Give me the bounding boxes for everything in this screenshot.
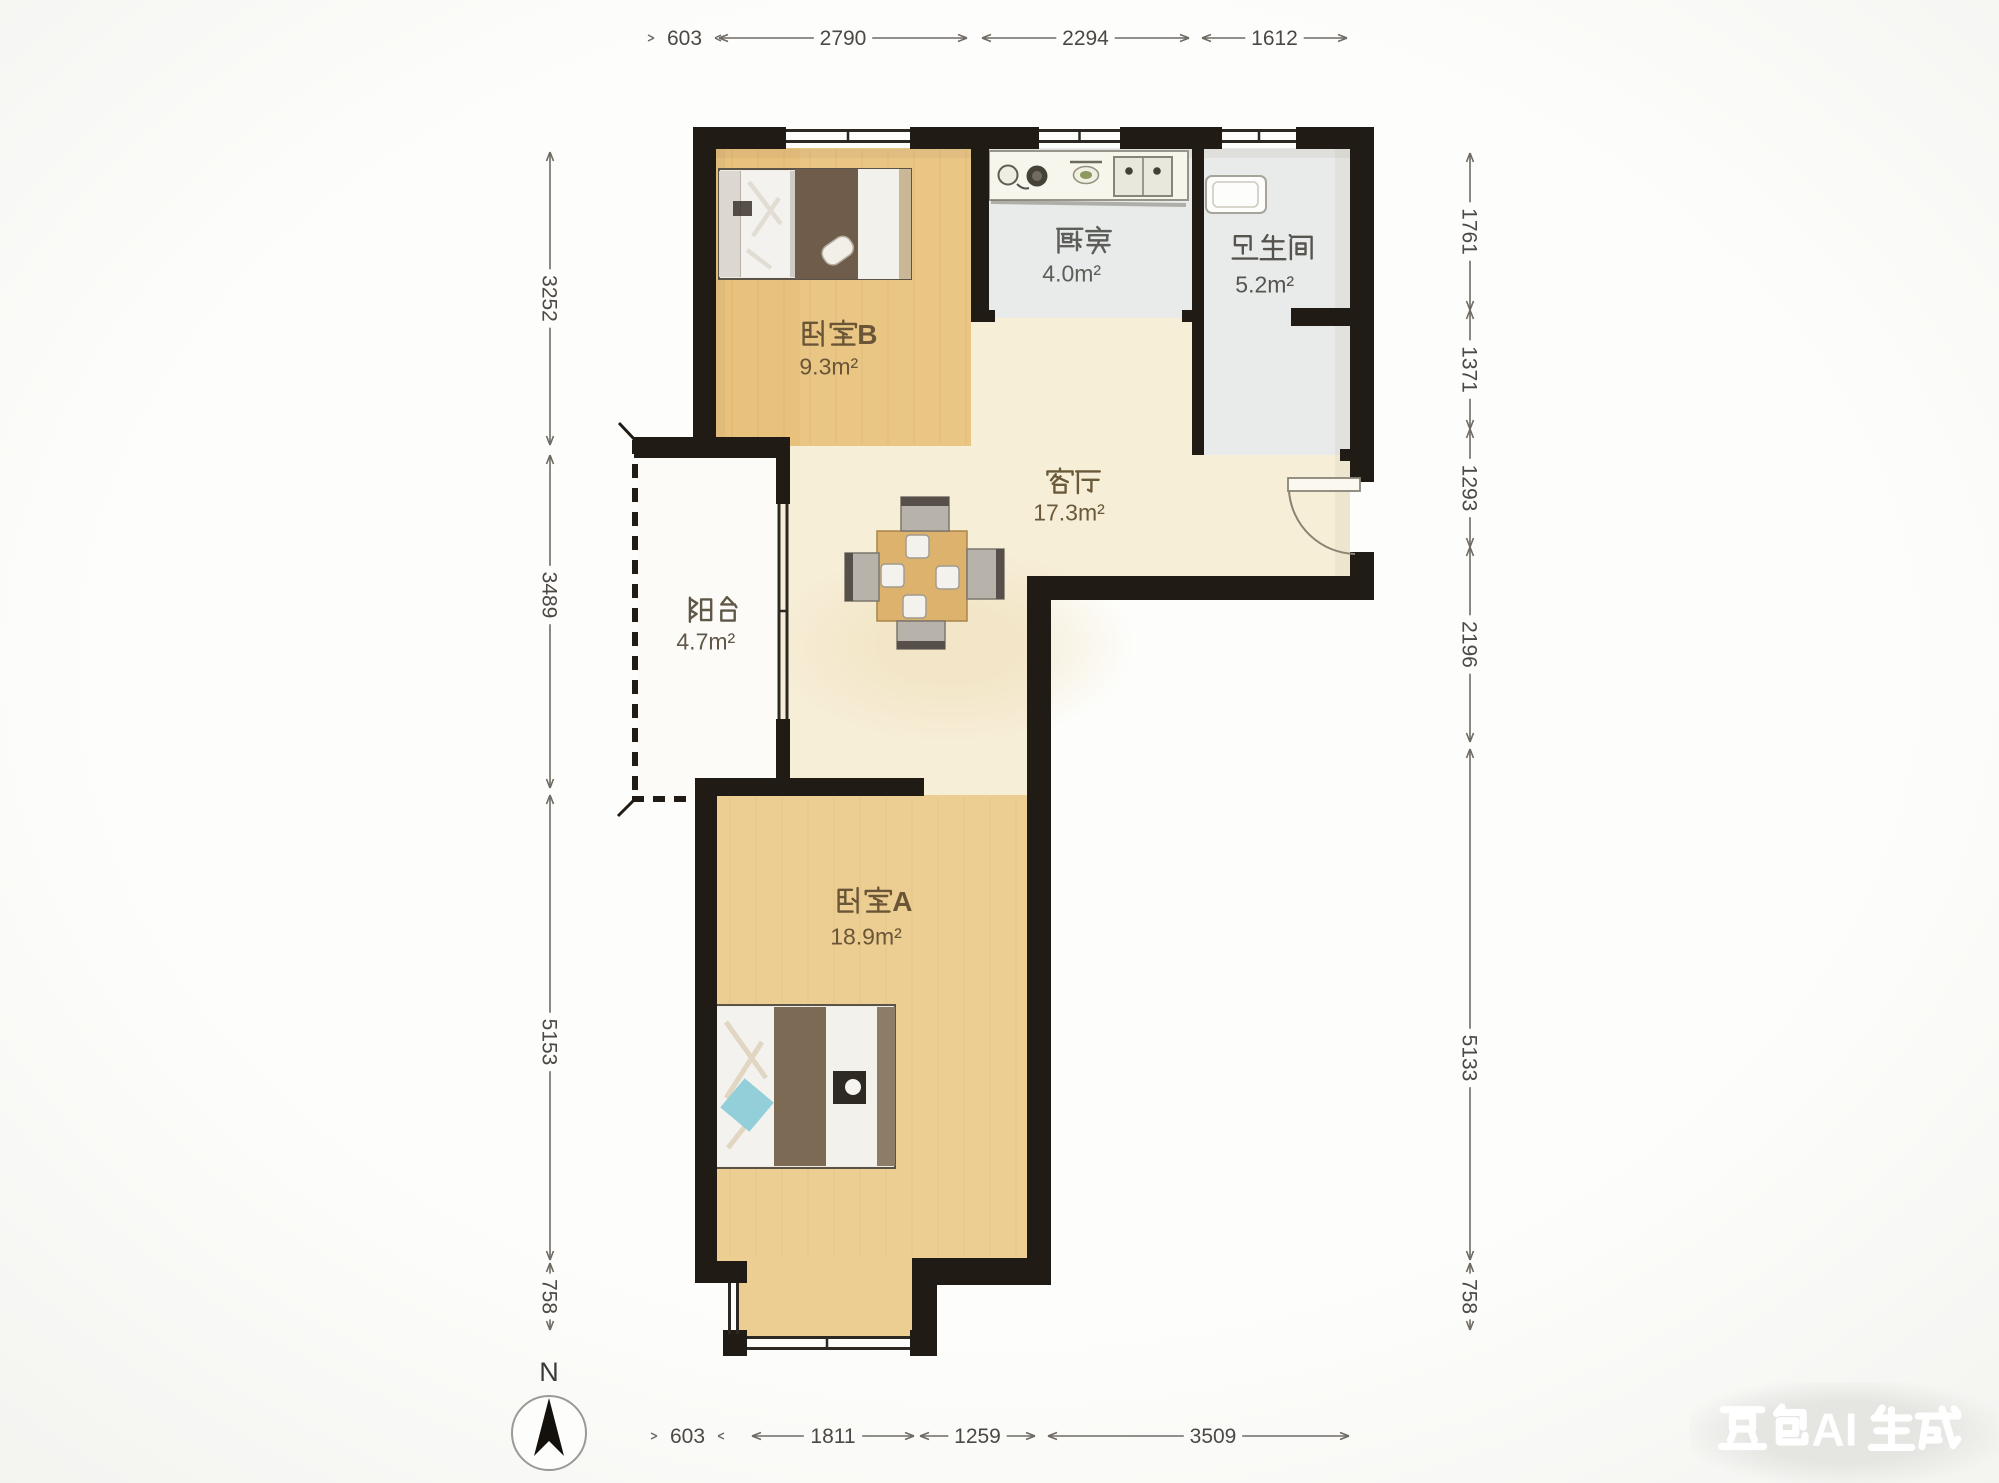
svg-text:17.3m²: 17.3m² [1033,499,1105,525]
svg-text:3489: 3489 [537,572,560,619]
svg-text:1293: 1293 [1457,465,1480,512]
svg-text:4.7m²: 4.7m² [676,628,735,654]
svg-text:9.3m²: 9.3m² [799,353,858,379]
svg-text:2196: 2196 [1457,621,1480,668]
svg-text:1371: 1371 [1457,346,1480,393]
svg-text:4.0m²: 4.0m² [1042,260,1101,286]
svg-text:1259: 1259 [954,1425,1001,1448]
svg-text:B: B [857,319,877,350]
svg-text:758: 758 [1457,1279,1480,1314]
svg-text:2294: 2294 [1062,27,1109,50]
svg-text:3252: 3252 [537,275,560,322]
svg-text:2790: 2790 [820,27,867,50]
svg-text:603: 603 [667,27,702,50]
svg-text:1761: 1761 [1457,208,1480,255]
svg-text:603: 603 [670,1425,705,1448]
svg-text:1612: 1612 [1251,27,1298,50]
svg-text:3509: 3509 [1190,1425,1237,1448]
svg-text:5133: 5133 [1457,1035,1480,1082]
svg-text:5.2m²: 5.2m² [1235,271,1294,297]
svg-text:758: 758 [537,1279,560,1314]
svg-text:A: A [892,886,912,917]
svg-text:N: N [539,1357,559,1387]
svg-text:AI: AI [1812,1404,1858,1456]
svg-text:18.9m²: 18.9m² [830,923,902,949]
svg-text:1811: 1811 [810,1425,855,1448]
svg-text:5153: 5153 [537,1019,560,1066]
